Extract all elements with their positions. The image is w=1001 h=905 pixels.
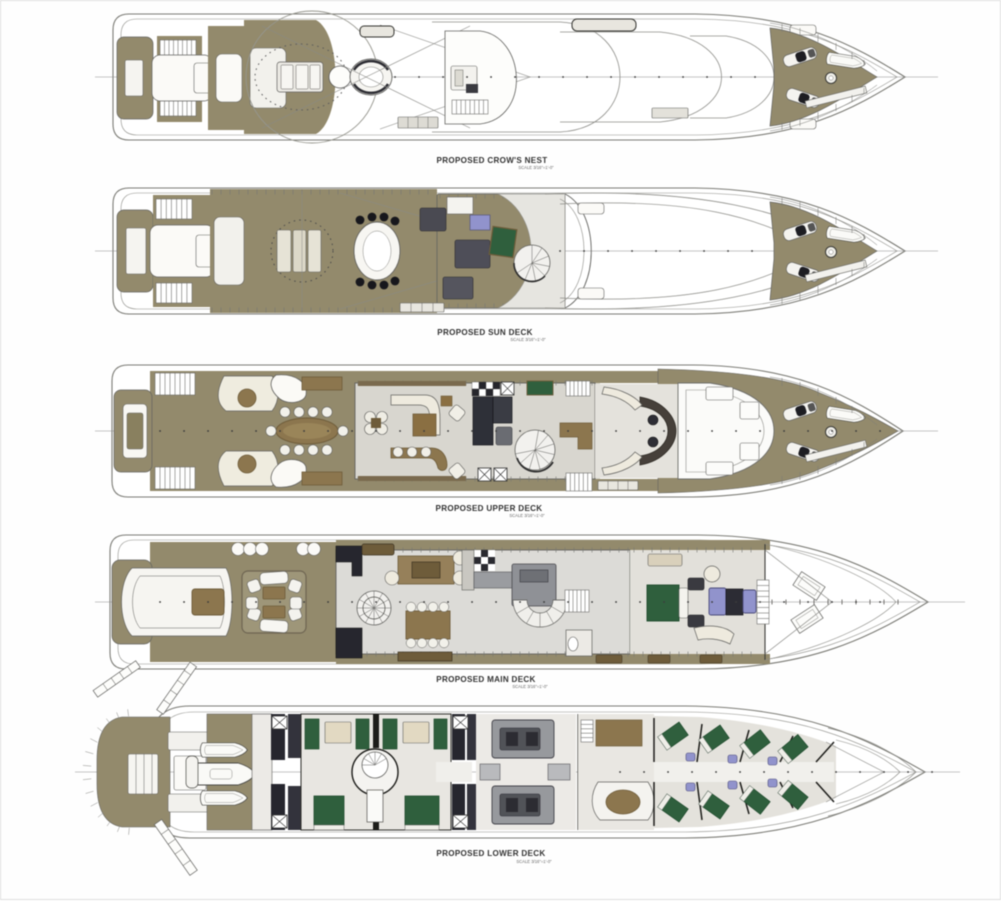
svg-text:PROPOSED SUN DECK: PROPOSED SUN DECK <box>437 328 533 337</box>
svg-text:PROPOSED MAIN DECK: PROPOSED MAIN DECK <box>436 675 535 684</box>
svg-text:SCALE 3/16"=1'-0": SCALE 3/16"=1'-0" <box>510 337 546 342</box>
svg-text:SCALE 3/16"=1'-0": SCALE 3/16"=1'-0" <box>509 513 545 518</box>
svg-text:PROPOSED LOWER DECK: PROPOSED LOWER DECK <box>436 849 545 858</box>
svg-text:SCALE 3/16"=1'-0": SCALE 3/16"=1'-0" <box>516 859 552 864</box>
svg-text:PROPOSED UPPER DECK: PROPOSED UPPER DECK <box>436 504 543 513</box>
svg-text:PROPOSED CROW'S NEST: PROPOSED CROW'S NEST <box>437 156 548 165</box>
svg-text:SCALE 3/16"=1'-0": SCALE 3/16"=1'-0" <box>518 165 554 170</box>
svg-text:SCALE 3/16"=1'-0": SCALE 3/16"=1'-0" <box>512 684 548 689</box>
